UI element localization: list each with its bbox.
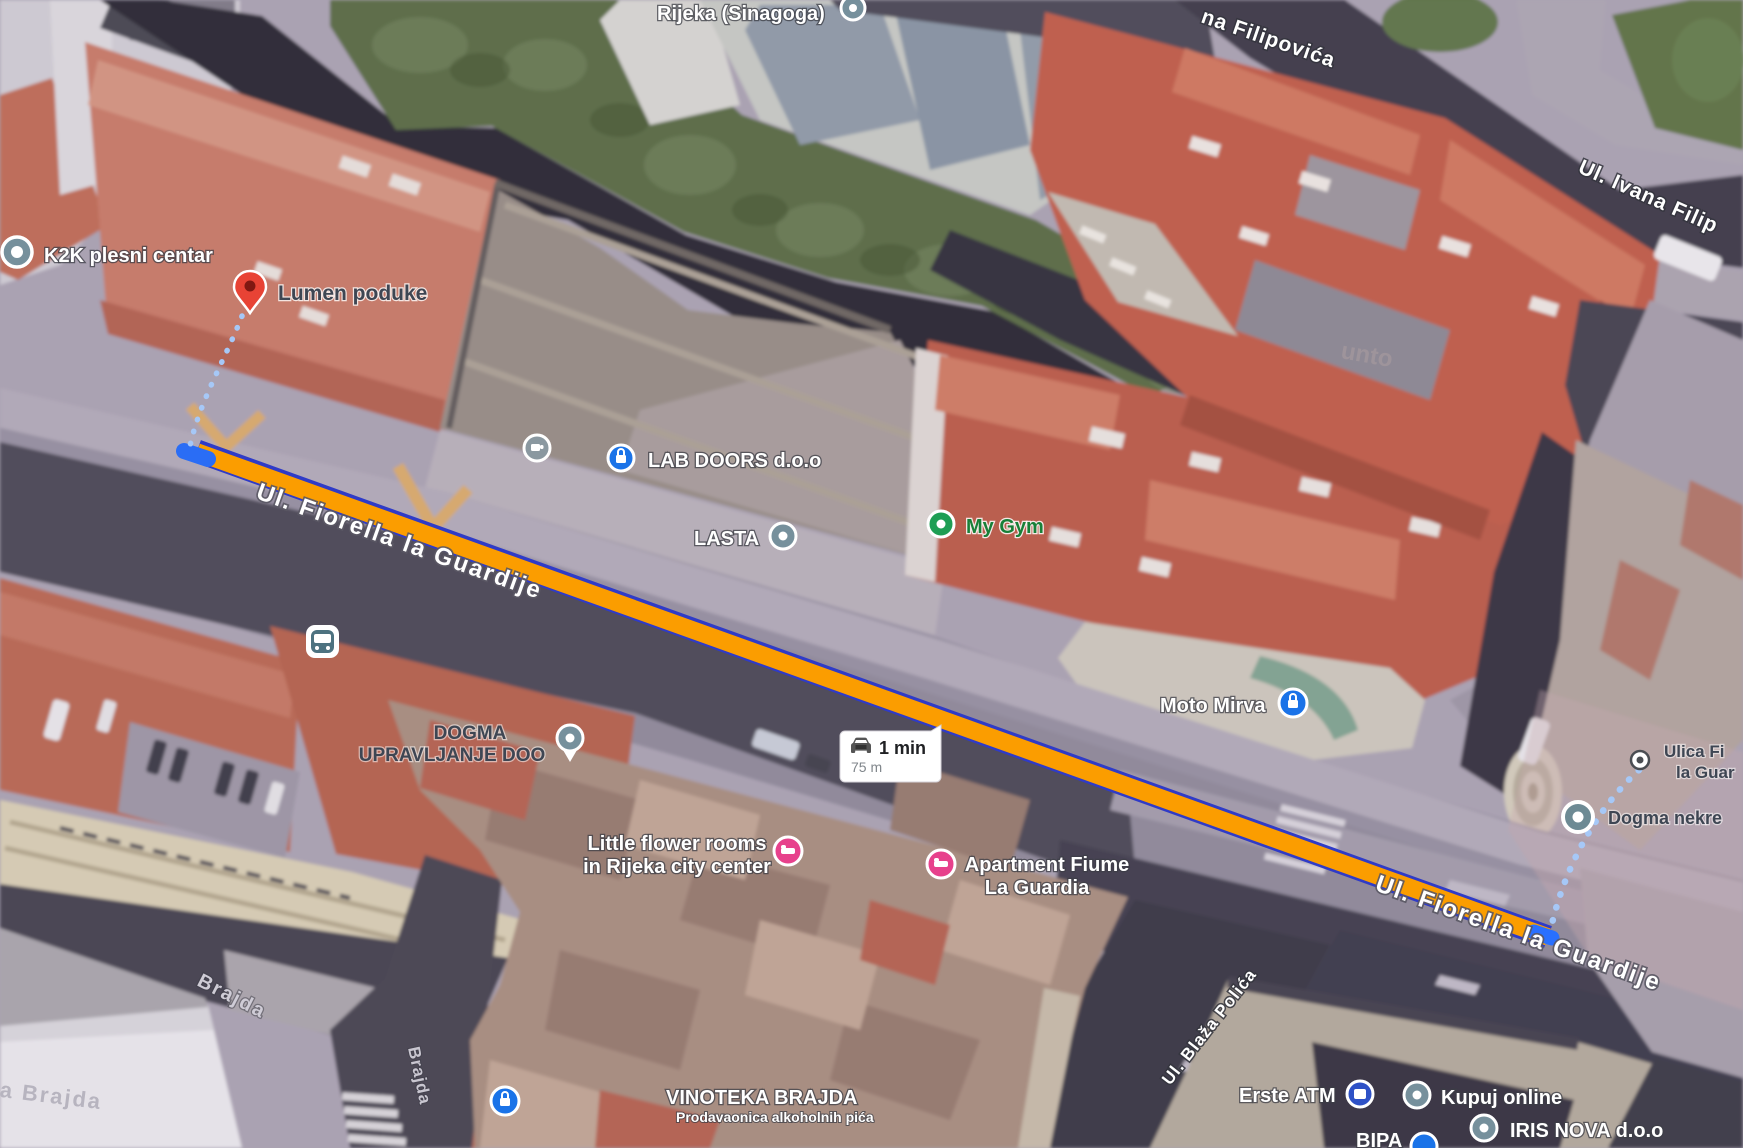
svg-text:Erste ATM: Erste ATM xyxy=(1239,1085,1336,1107)
svg-text:La Guardia: La Guardia xyxy=(985,877,1090,899)
svg-text:DOGMA: DOGMA xyxy=(434,723,507,744)
svg-text:Little flower rooms: Little flower rooms xyxy=(588,833,767,855)
svg-text:Prodavaonica alkoholnih pića: Prodavaonica alkoholnih pića xyxy=(676,1109,874,1125)
svg-text:IRIS NOVA d.o.o: IRIS NOVA d.o.o xyxy=(1510,1120,1663,1142)
svg-text:LAB DOORS d.o.o: LAB DOORS d.o.o xyxy=(648,450,821,472)
svg-text:1 min: 1 min xyxy=(879,738,926,758)
svg-text:Lumen poduke: Lumen poduke xyxy=(278,282,427,305)
svg-text:Dogma nekre: Dogma nekre xyxy=(1608,808,1722,828)
svg-text:la Guar: la Guar xyxy=(1676,763,1735,782)
svg-text:Apartment Fiume: Apartment Fiume xyxy=(965,854,1129,876)
svg-text:My Gym: My Gym xyxy=(966,516,1044,538)
svg-text:Kupuj online: Kupuj online xyxy=(1441,1087,1562,1109)
svg-text:BIPA: BIPA xyxy=(1356,1130,1402,1148)
svg-text:K2K plesni centar: K2K plesni centar xyxy=(44,245,213,267)
svg-text:Ulica Fi: Ulica Fi xyxy=(1664,742,1724,761)
svg-text:UPRAVLJANJE DOO: UPRAVLJANJE DOO xyxy=(359,745,546,766)
svg-text:LASTA: LASTA xyxy=(694,528,759,550)
svg-text:Moto Mirva: Moto Mirva xyxy=(1160,695,1266,717)
svg-text:in Rijeka city center: in Rijeka city center xyxy=(583,856,771,878)
svg-text:75 m: 75 m xyxy=(851,759,882,775)
svg-text:Rijeka (Sinagoga): Rijeka (Sinagoga) xyxy=(657,3,825,25)
svg-text:VINOTEKA BRAJDA: VINOTEKA BRAJDA xyxy=(666,1087,858,1109)
